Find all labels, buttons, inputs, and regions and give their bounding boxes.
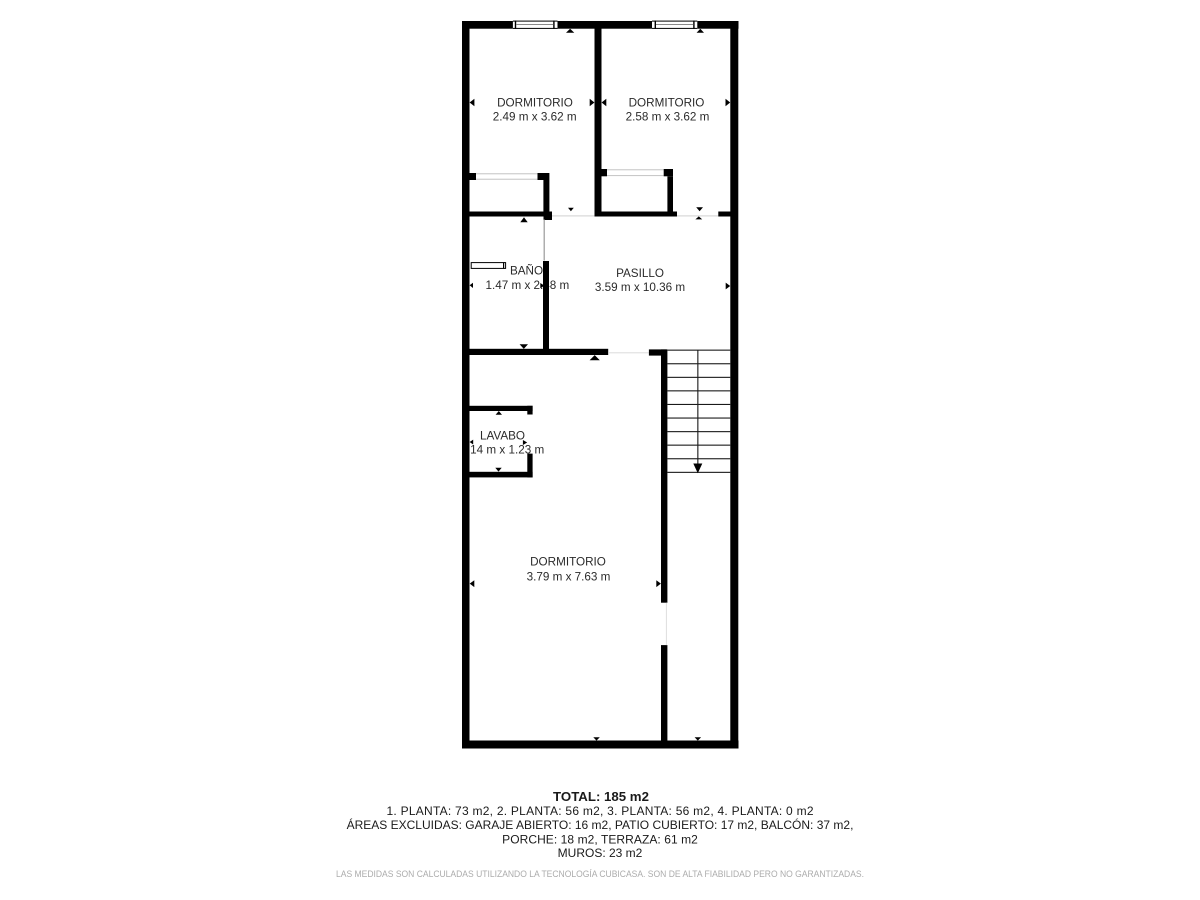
svg-text:MUROS: 23 m2: MUROS: 23 m2 [558,846,643,860]
svg-text:LAS MEDIDAS SON CALCULADAS UTI: LAS MEDIDAS SON CALCULADAS UTILIZANDO LA… [336,869,864,879]
svg-text:LAVABO: LAVABO [480,429,525,442]
svg-text:TOTAL: 185 m2: TOTAL: 185 m2 [553,790,649,804]
svg-text:BAÑO: BAÑO [510,265,543,278]
svg-text:ÁREAS EXCLUIDAS: GARAJE ABIERT: ÁREAS EXCLUIDAS: GARAJE ABIERTO: 16 m2, … [347,817,854,832]
svg-text:PASILLO: PASILLO [616,267,664,280]
svg-text:DORMITORIO: DORMITORIO [530,556,606,569]
svg-text:2.49 m x 3.62 m: 2.49 m x 3.62 m [493,111,577,124]
svg-text:PORCHE: 18 m2, TERRAZA: 61 m2: PORCHE: 18 m2, TERRAZA: 61 m2 [502,832,698,846]
svg-text:DORMITORIO: DORMITORIO [497,96,573,109]
svg-text:3.79 m x 7.63 m: 3.79 m x 7.63 m [527,571,611,584]
svg-text:2.58 m x 3.62 m: 2.58 m x 3.62 m [626,111,710,124]
svg-text:1. PLANTA: 73 m2, 2. PLANTA: 5: 1. PLANTA: 73 m2, 2. PLANTA: 56 m2, 3. P… [387,804,814,818]
svg-text:DORMITORIO: DORMITORIO [629,96,705,109]
svg-text:1.47 m x 2.48 m: 1.47 m x 2.48 m [485,279,569,292]
svg-text:3.59 m x 10.36 m: 3.59 m x 10.36 m [595,281,685,294]
